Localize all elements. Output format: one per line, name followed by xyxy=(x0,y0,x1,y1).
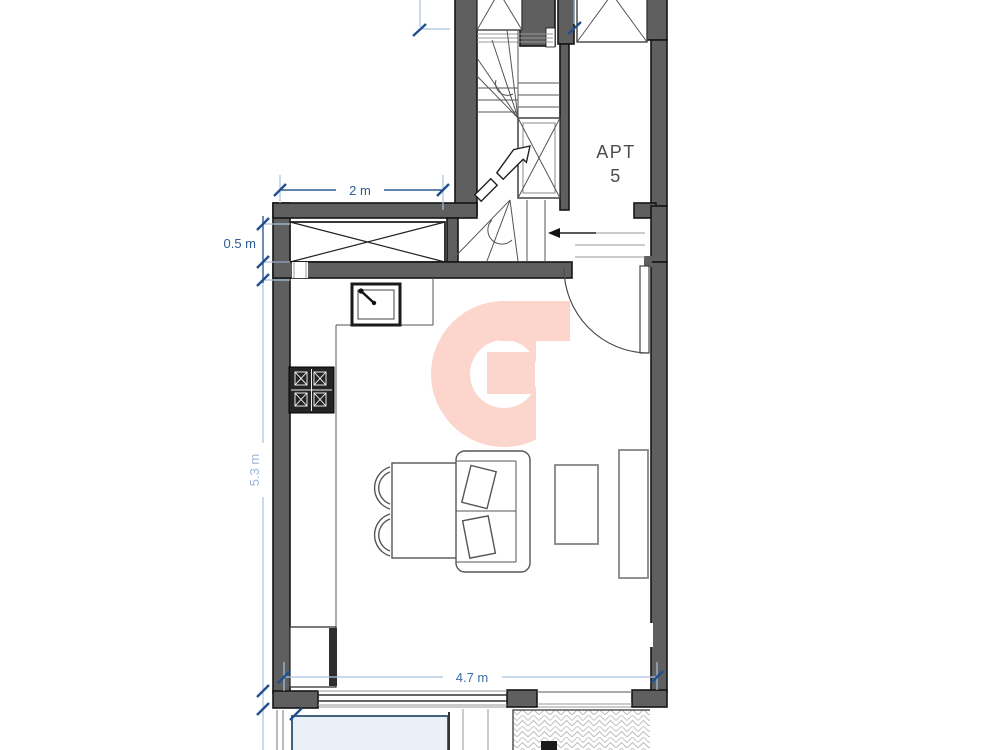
dining-chair xyxy=(375,467,390,509)
logo-mouth xyxy=(536,341,582,451)
apartment-label-line1: APT xyxy=(596,142,636,162)
stove xyxy=(289,367,334,413)
south-pier-left xyxy=(273,691,318,708)
dining-table xyxy=(392,463,458,558)
kitchen-sink xyxy=(352,284,400,325)
door-jamb xyxy=(644,256,652,267)
tall-cabinet xyxy=(290,627,337,687)
logo-watermark xyxy=(431,301,582,451)
south-pier-mid xyxy=(507,690,537,707)
right-wall xyxy=(651,40,667,206)
exit-arrow xyxy=(548,228,560,238)
north-wall-upper xyxy=(273,203,477,218)
living-furniture xyxy=(375,450,648,578)
exterior-area xyxy=(273,707,667,750)
right-wall xyxy=(651,206,667,262)
sideboard xyxy=(619,450,648,578)
sliding-glass-wall xyxy=(318,691,507,705)
dimension-label-05m: 0.5 m xyxy=(223,236,256,251)
pool xyxy=(292,716,448,750)
void-box xyxy=(577,0,647,42)
stair-left-wall xyxy=(455,0,477,215)
south-pier-right xyxy=(632,690,667,707)
dimension-label-2m: 2 m xyxy=(349,183,371,198)
outdoor-block xyxy=(541,741,557,750)
dining-chair xyxy=(375,514,390,556)
floor-plan-svg: 2 m 0.5 m 5.3 m 4.7 m xyxy=(0,0,1000,750)
wall-notch xyxy=(649,623,653,647)
stair-corridor-wall xyxy=(560,44,569,210)
stair-landing xyxy=(548,228,645,257)
door-leaf xyxy=(640,266,649,353)
logo-top-arm xyxy=(500,301,570,341)
coffee-table xyxy=(555,465,598,544)
room-labels: APT 5 xyxy=(596,142,636,186)
north-wall-lower xyxy=(273,262,572,278)
apartment-label-line2: 5 xyxy=(610,166,622,186)
sofa xyxy=(456,451,530,572)
door-swing-arc xyxy=(564,268,648,353)
duct-box xyxy=(290,222,445,262)
logo-crossbar xyxy=(487,352,535,394)
floor-plan-page: 2 m 0.5 m 5.3 m 4.7 m xyxy=(0,0,1000,750)
top-right-pier xyxy=(645,0,667,40)
dimension-label-53m: 5.3 m xyxy=(247,454,262,487)
dimension-label-47m: 4.7 m xyxy=(456,670,489,685)
right-wall xyxy=(651,262,667,692)
paved-terrace xyxy=(513,710,650,750)
entrance-door xyxy=(564,266,649,353)
top-pier xyxy=(558,0,574,44)
